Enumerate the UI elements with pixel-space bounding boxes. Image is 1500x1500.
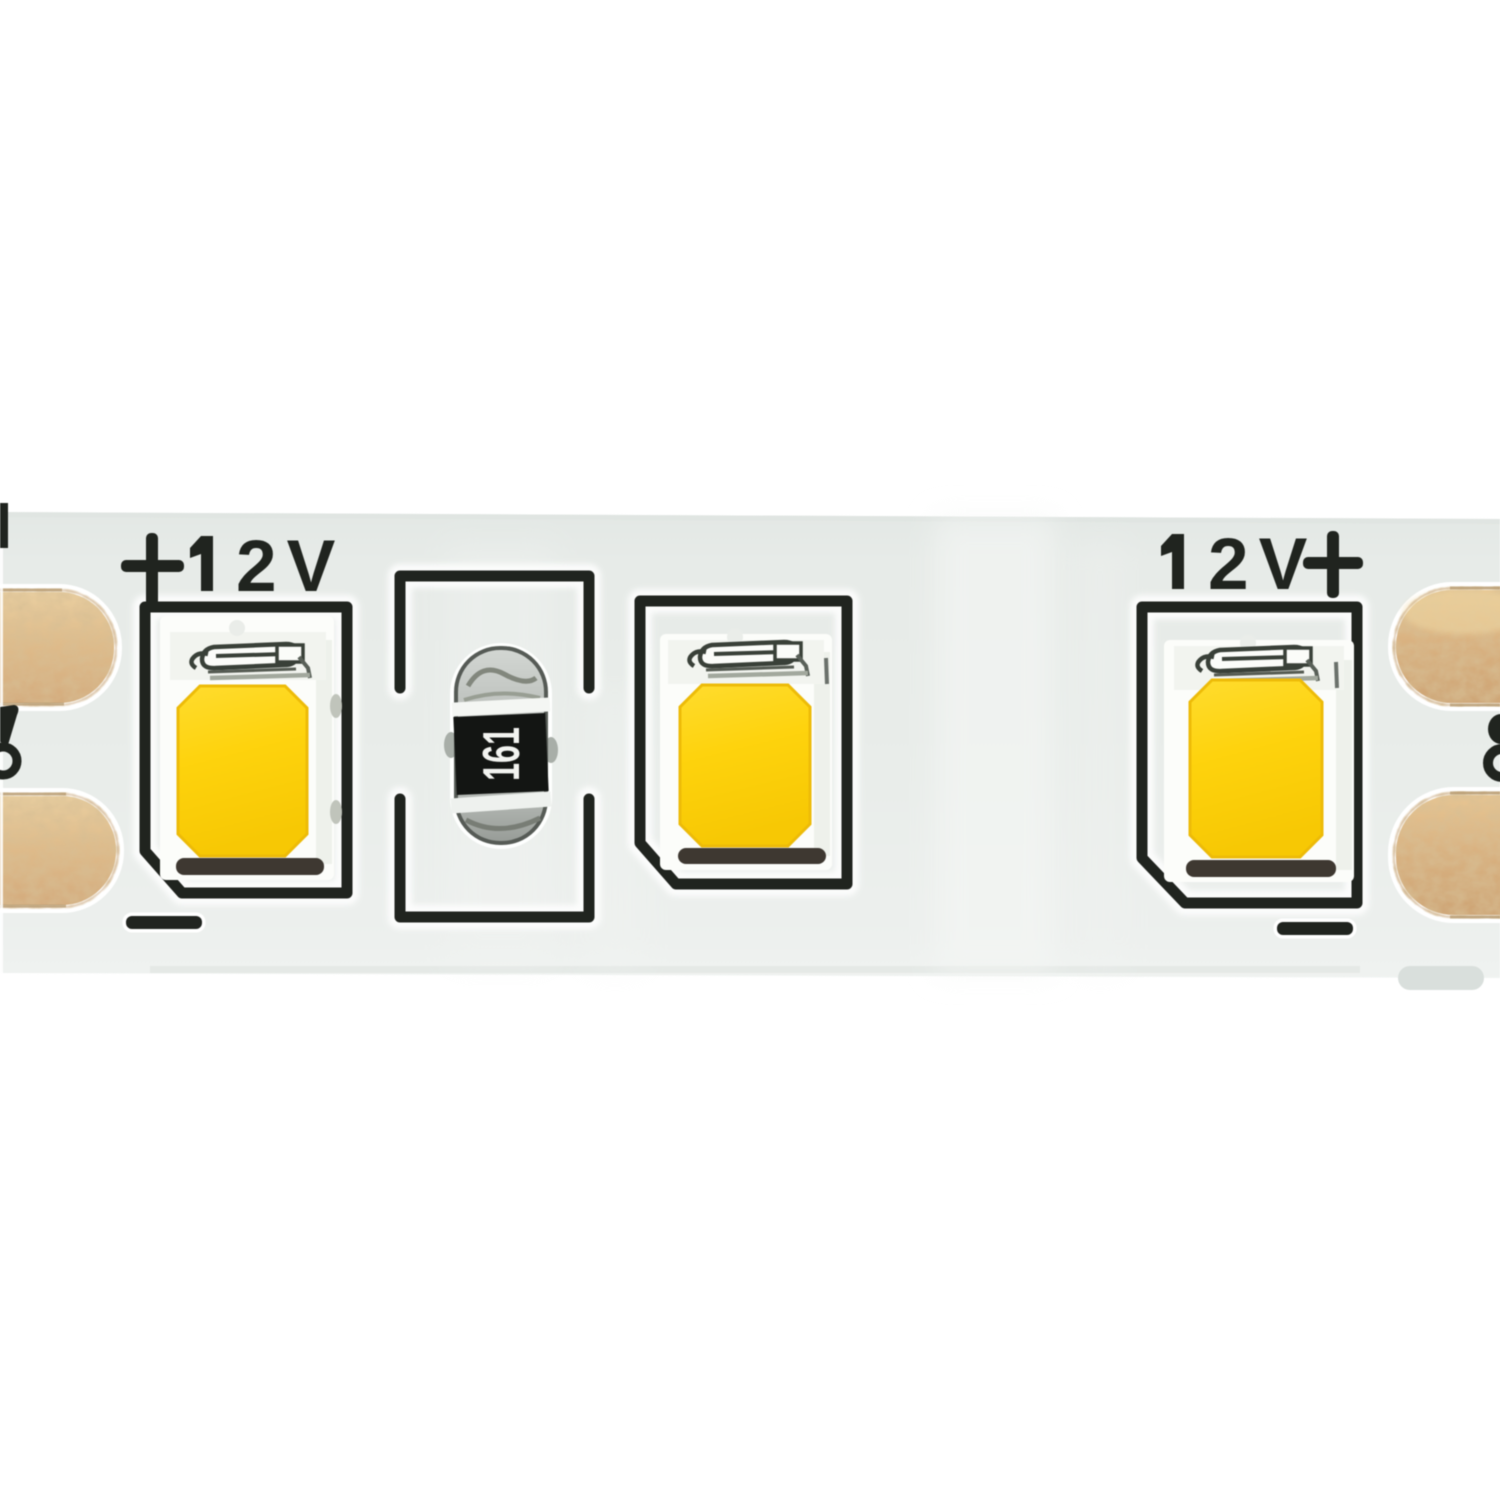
svg-text:2V: 2V — [236, 526, 345, 607]
svg-text:161: 161 — [473, 727, 531, 781]
svg-text:2V: 2V — [1208, 524, 1317, 605]
